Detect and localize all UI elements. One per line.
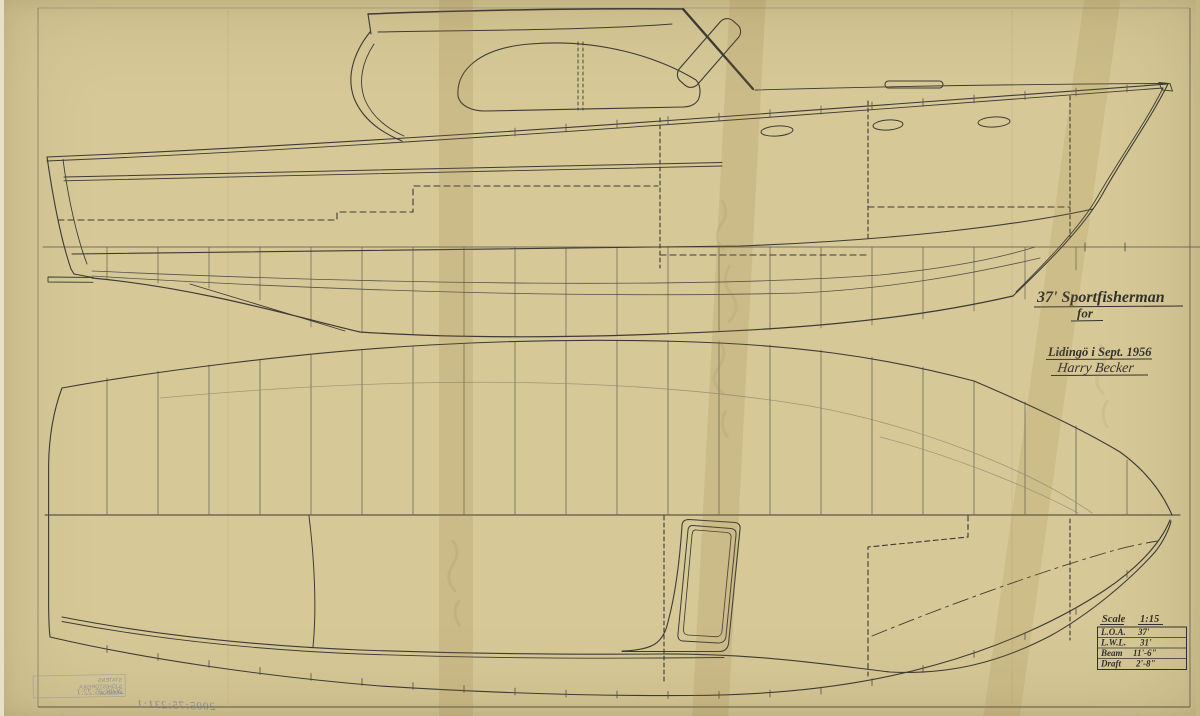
scale-label: Scale [1102,614,1126,625]
tape-stain [691,0,767,716]
museum-stamp: STATENS SJÖHISTORISKA MUSEUM 2608:25:22:… [33,674,125,698]
profile-stations [107,247,1076,337]
spec-label-draft: Draft [1100,659,1121,669]
spec-value-beam: 11'-6" [1133,648,1157,658]
stamp-line1: STATENS [98,677,123,683]
accession-number: 2005:75:231:1 [136,698,215,713]
profile-view [43,9,1200,337]
title-for: for [1077,306,1094,321]
spec-label-beam: Beam [1100,648,1123,658]
interior-dashed-profile [58,96,1070,268]
scale-table: Scale 1:15 L.O.A. 37' L.W.L. 31' Beam 11… [1098,614,1187,670]
cabin-window [458,43,700,111]
tape-stain [439,0,473,716]
scale-value: 1:15 [1140,614,1159,625]
deckhouse-profile [351,9,753,141]
spec-label-lwl: L.W.L. [1100,638,1126,648]
plan-stations [107,340,1127,515]
deck-fittings [761,116,1011,137]
tape-stains [439,0,1122,716]
blueprint-sheet: 37' Sportfisherman for Lidingö i Sept. 1… [0,0,1200,716]
fold-lines [228,10,1012,705]
blueprint-canvas: 37' Sportfisherman for Lidingö i Sept. 1… [0,0,1200,716]
spec-value-loa: 37' [1137,627,1150,637]
spec-value-lwl: 31' [1139,638,1152,648]
spec-label-loa: L.O.A. [1100,627,1126,637]
stamp-number: 2608:25:22:1 [76,686,123,697]
svg-text:2005:75:231:1: 2005:75:231:1 [136,698,215,713]
plan-waterlines [160,382,1092,513]
spec-value-draft: 2'-8" [1135,659,1156,669]
